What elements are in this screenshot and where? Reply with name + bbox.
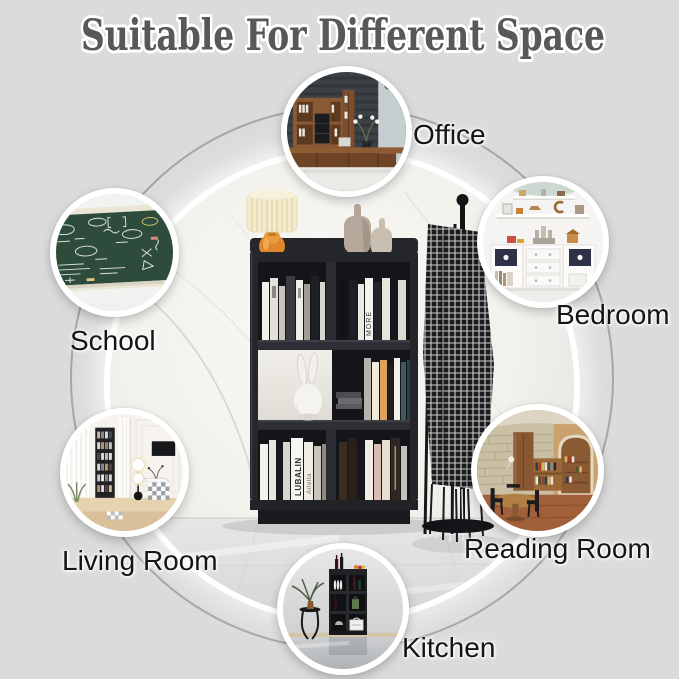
books-bottom-left: LUBALIN Arletta	[260, 438, 326, 500]
bookcase: MORE	[222, 252, 446, 535]
living-room-photo	[66, 414, 183, 531]
office-label: Office	[413, 119, 486, 151]
books-top-left	[262, 276, 325, 340]
book-spine-more: MORE	[366, 311, 373, 336]
office-photo-circle	[281, 66, 412, 197]
school-label: School	[70, 325, 156, 357]
book-spine-arletta: Arletta	[307, 473, 313, 494]
bedroom-photo	[483, 182, 603, 302]
reading-room-photo	[477, 410, 598, 531]
school-photo-circle	[50, 188, 179, 317]
kitchen-label: Kitchen	[402, 632, 495, 664]
book-spine-lubalin: LUBALIN	[294, 457, 303, 496]
office-photo	[287, 72, 406, 191]
kitchen-photo-circle	[277, 543, 409, 675]
school-photo	[56, 194, 173, 311]
page-title: Suitable For Different Space	[0, 4, 679, 68]
plant-pot	[307, 601, 314, 609]
reading-room-label: Reading Room	[464, 533, 651, 565]
tall-bookshelf	[95, 428, 115, 502]
books-top-right: MORE	[339, 276, 406, 340]
kitchen-photo	[283, 549, 403, 669]
promo-graphic: Suitable For Different Space	[0, 0, 679, 679]
living-room-label: Living Room	[62, 545, 218, 577]
living-room-photo-circle	[60, 408, 189, 537]
low-bookshelf	[533, 458, 561, 490]
books-bottom-right	[339, 438, 407, 500]
title-text: Suitable For Different Space	[81, 11, 605, 61]
storage-cabinet	[491, 245, 595, 288]
chalkboard	[56, 203, 173, 292]
wall-tv	[152, 441, 175, 456]
bedroom-photo-circle	[477, 176, 609, 308]
column	[119, 418, 132, 502]
desk-monitor	[339, 137, 351, 146]
executive-desk	[287, 147, 406, 167]
bedroom-label: Bedroom	[556, 299, 670, 331]
reading-room-photo-circle	[471, 404, 604, 537]
